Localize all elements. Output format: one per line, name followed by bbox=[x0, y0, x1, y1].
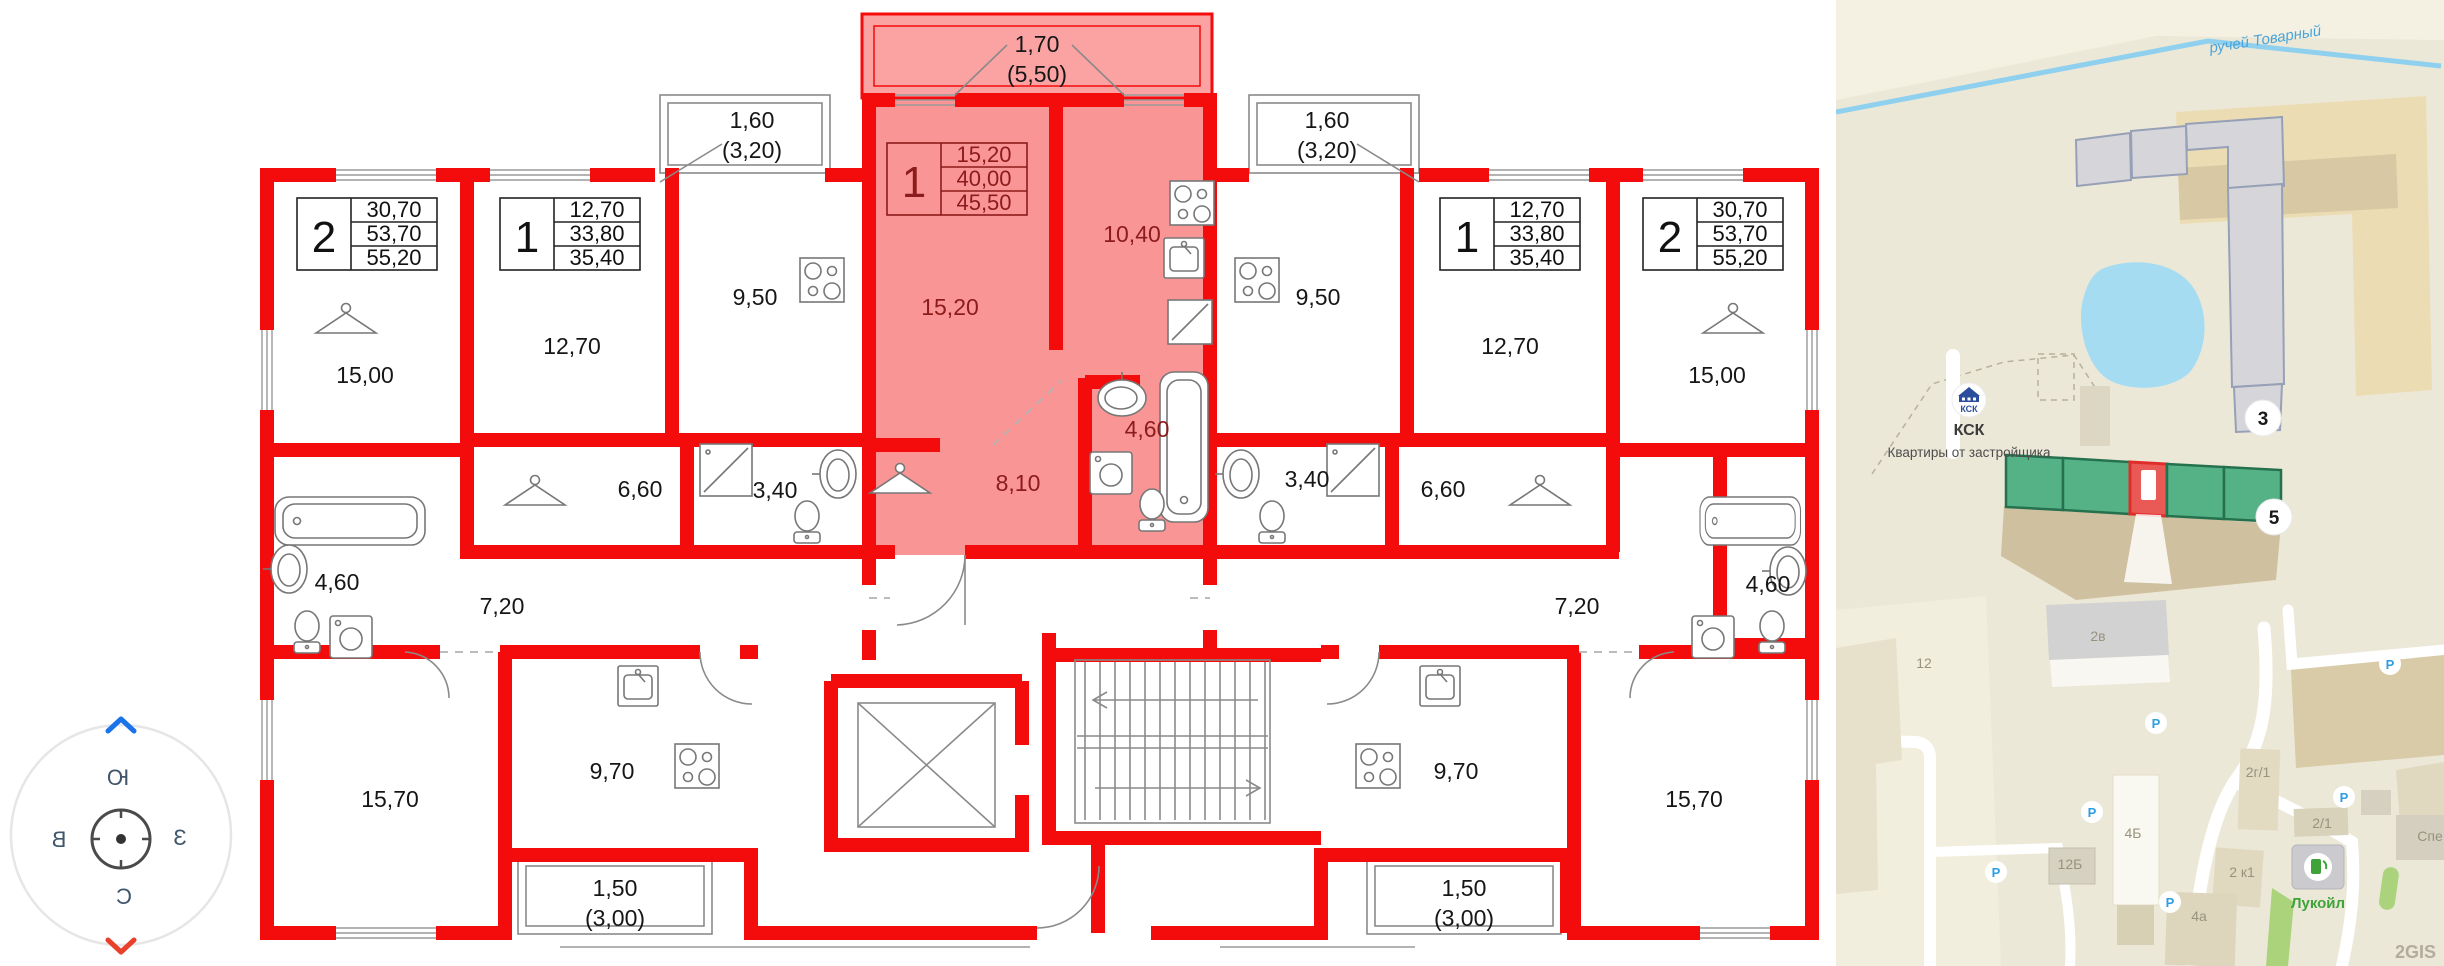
lukoil-label: Лукойл bbox=[2291, 895, 2345, 912]
row-section[interactable] bbox=[2167, 464, 2224, 519]
toilet-icon bbox=[1139, 489, 1165, 531]
map-marker-3[interactable]: 3 bbox=[2245, 400, 2281, 436]
unit-area: 30,70 bbox=[1712, 197, 1767, 222]
room-area-label: 9,70 bbox=[590, 758, 635, 784]
washing-machine-icon bbox=[330, 616, 372, 658]
unit-rooms-count: 2 bbox=[312, 213, 336, 262]
bathtub-icon bbox=[1700, 497, 1801, 545]
toilet-icon bbox=[1759, 611, 1785, 653]
room-area-label: 15,00 bbox=[1688, 362, 1746, 388]
unit-area: 53,70 bbox=[366, 221, 421, 246]
unit-rooms-count: 2 bbox=[1658, 213, 1682, 262]
room-area-label: 15,20 bbox=[921, 294, 979, 320]
staircase-icon bbox=[1075, 660, 1270, 823]
room-area-label: 6,60 bbox=[618, 476, 663, 502]
unit-area: 45,50 bbox=[956, 190, 1011, 215]
hanger-icon bbox=[1703, 304, 1763, 334]
unit-area: 55,20 bbox=[366, 245, 421, 270]
stove-icon bbox=[800, 258, 844, 302]
room-area-label: 4,60 bbox=[1746, 571, 1791, 597]
building-label: 4Б bbox=[2125, 825, 2142, 841]
parking-icon: P bbox=[2159, 891, 2181, 913]
room-area-label: 3,40 bbox=[1285, 466, 1330, 492]
bathtub-icon bbox=[1160, 372, 1208, 522]
room-area-label: 12,70 bbox=[543, 333, 601, 359]
unit-area: 33,80 bbox=[1509, 221, 1564, 246]
row-section[interactable] bbox=[2063, 458, 2130, 514]
stove-icon bbox=[1356, 744, 1400, 788]
compass-east-label: В bbox=[52, 827, 67, 852]
balcony-label: 1,70 bbox=[1015, 31, 1060, 57]
washing-machine-icon bbox=[1692, 616, 1734, 658]
balcony-label: (3,20) bbox=[1297, 137, 1357, 163]
apartment-info-card[interactable]: 2 30,70 53,70 55,20 bbox=[1643, 197, 1783, 270]
map-watermark: 2GIS bbox=[2395, 942, 2436, 962]
toilet-icon bbox=[794, 501, 820, 543]
kitchen-sink-icon bbox=[618, 666, 658, 706]
toilet-icon bbox=[1259, 501, 1285, 543]
building-label-partial: Спе bbox=[2417, 828, 2443, 844]
building-label: 4а bbox=[2191, 908, 2207, 924]
room-area-label: 7,20 bbox=[480, 593, 525, 619]
unit-area: 15,20 bbox=[956, 142, 1011, 167]
parking-icon: P bbox=[2379, 653, 2401, 675]
unit-area: 30,70 bbox=[366, 197, 421, 222]
balcony-label: 1,50 bbox=[593, 875, 638, 901]
apartment-info-card[interactable]: 2 30,70 53,70 55,20 bbox=[297, 197, 437, 270]
unit-rooms-count: 1 bbox=[1455, 213, 1479, 262]
apartment-info-card[interactable]: 1 12,70 33,80 35,40 bbox=[1440, 197, 1580, 270]
room-area-label: 4,60 bbox=[1125, 416, 1170, 442]
shower-icon bbox=[1327, 444, 1379, 496]
fridge-icon bbox=[1168, 300, 1212, 344]
unit-area: 12,70 bbox=[569, 197, 624, 222]
bathtub-icon bbox=[275, 497, 425, 545]
room-area-label: 7,20 bbox=[1555, 593, 1600, 619]
room-area-label: 6,60 bbox=[1421, 476, 1466, 502]
parking-icon: P bbox=[1985, 861, 2007, 883]
unit-area: 35,40 bbox=[1509, 245, 1564, 270]
room-area-label: 12,70 bbox=[1481, 333, 1539, 359]
svg-text:P: P bbox=[2340, 790, 2349, 805]
marker-number: 5 bbox=[2269, 508, 2280, 529]
compass-south-label: Ю bbox=[107, 765, 129, 790]
building-label: 2 к1 bbox=[2229, 864, 2255, 880]
balcony-label: (5,50) bbox=[1007, 61, 1067, 87]
kitchen-sink-icon bbox=[1164, 238, 1204, 278]
developer-tagline: Квартиры от застройщика bbox=[1888, 445, 2051, 460]
stove-icon bbox=[1235, 258, 1279, 302]
marker-number: 3 bbox=[2258, 409, 2269, 430]
room-area-label: 9,70 bbox=[1434, 758, 1479, 784]
hanger-icon bbox=[1510, 476, 1570, 506]
map-canvas[interactable]: ручей Товарный bbox=[1836, 0, 2444, 966]
elevator-icon bbox=[858, 703, 995, 827]
sink-basin-icon bbox=[812, 450, 856, 498]
unit-rooms-count: 1 bbox=[902, 158, 926, 207]
balcony-label: (3,00) bbox=[1434, 905, 1494, 931]
building-label: 2/1 bbox=[2312, 815, 2332, 831]
lukoil-station[interactable]: Лукойл bbox=[2291, 845, 2345, 912]
compass-north-label: С bbox=[116, 884, 132, 909]
building-label: 12Б bbox=[2058, 856, 2083, 872]
stove-icon bbox=[675, 744, 719, 788]
floorplan-viewer: 15,00 4,60 7,20 15,70 9,70 12,70 9,50 3,… bbox=[0, 0, 2444, 966]
balcony-label: (3,00) bbox=[585, 905, 645, 931]
room-area-label: 9,50 bbox=[733, 284, 778, 310]
balcony-label: 1,60 bbox=[1305, 107, 1350, 133]
room-area-label: 15,70 bbox=[1665, 786, 1723, 812]
building-label: 12 bbox=[1916, 655, 1932, 671]
svg-text:P: P bbox=[2166, 895, 2175, 910]
svg-text:P: P bbox=[2386, 657, 2395, 672]
room-area-label: 3,40 bbox=[753, 477, 798, 503]
unit-area: 55,20 bbox=[1712, 245, 1767, 270]
pond bbox=[2081, 262, 2205, 388]
room-area-label: 15,70 bbox=[361, 786, 419, 812]
toilet-icon bbox=[294, 611, 320, 653]
svg-text:P: P bbox=[2088, 805, 2097, 820]
parking-icon: P bbox=[2333, 786, 2355, 808]
hanger-icon bbox=[505, 476, 565, 506]
washing-machine-icon bbox=[1090, 452, 1132, 494]
compass: Ю В З С bbox=[11, 719, 231, 952]
unit-area: 33,80 bbox=[569, 221, 624, 246]
balcony-label: (3,20) bbox=[722, 137, 782, 163]
balcony-label: 1,50 bbox=[1442, 875, 1487, 901]
room-area-label: 15,00 bbox=[336, 362, 394, 388]
kitchen-sink-icon bbox=[1420, 666, 1460, 706]
floorplan-canvas[interactable]: 15,00 4,60 7,20 15,70 9,70 12,70 9,50 3,… bbox=[0, 0, 1836, 966]
unit-area: 40,00 bbox=[956, 166, 1011, 191]
room-area-label: 4,60 bbox=[315, 569, 360, 595]
parking-icon: P bbox=[2145, 712, 2167, 734]
sink-basin-icon bbox=[1215, 450, 1259, 498]
unit-area: 12,70 bbox=[1509, 197, 1564, 222]
map-marker-5[interactable]: 5 bbox=[2256, 499, 2292, 535]
parking-icon: P bbox=[2081, 801, 2103, 823]
unit-area: 53,70 bbox=[1712, 221, 1767, 246]
room-area-label: 9,50 bbox=[1296, 284, 1341, 310]
unit-rooms-count: 1 bbox=[515, 213, 539, 262]
shower-icon bbox=[700, 444, 752, 496]
room-area-label: 10,40 bbox=[1103, 221, 1161, 247]
building-label: 2г/1 bbox=[2246, 764, 2271, 780]
row-section[interactable] bbox=[2006, 455, 2063, 510]
svg-text:P: P bbox=[1992, 865, 2001, 880]
unit-area: 35,40 bbox=[569, 245, 624, 270]
building-label: 2в bbox=[2090, 628, 2105, 644]
developer-logo-text: КСК bbox=[1960, 404, 1978, 414]
svg-text:P: P bbox=[2152, 716, 2161, 731]
apartment-info-card[interactable]: 1 12,70 33,80 35,40 bbox=[500, 197, 640, 270]
room-area-label: 8,10 bbox=[996, 470, 1041, 496]
stove-icon bbox=[1170, 181, 1214, 225]
hanger-icon bbox=[316, 304, 376, 334]
developer-name: КСК bbox=[1954, 422, 1985, 439]
compass-west-label: З bbox=[173, 825, 186, 850]
selected-unit-footprint bbox=[2141, 470, 2156, 500]
balcony-label: 1,60 bbox=[730, 107, 775, 133]
